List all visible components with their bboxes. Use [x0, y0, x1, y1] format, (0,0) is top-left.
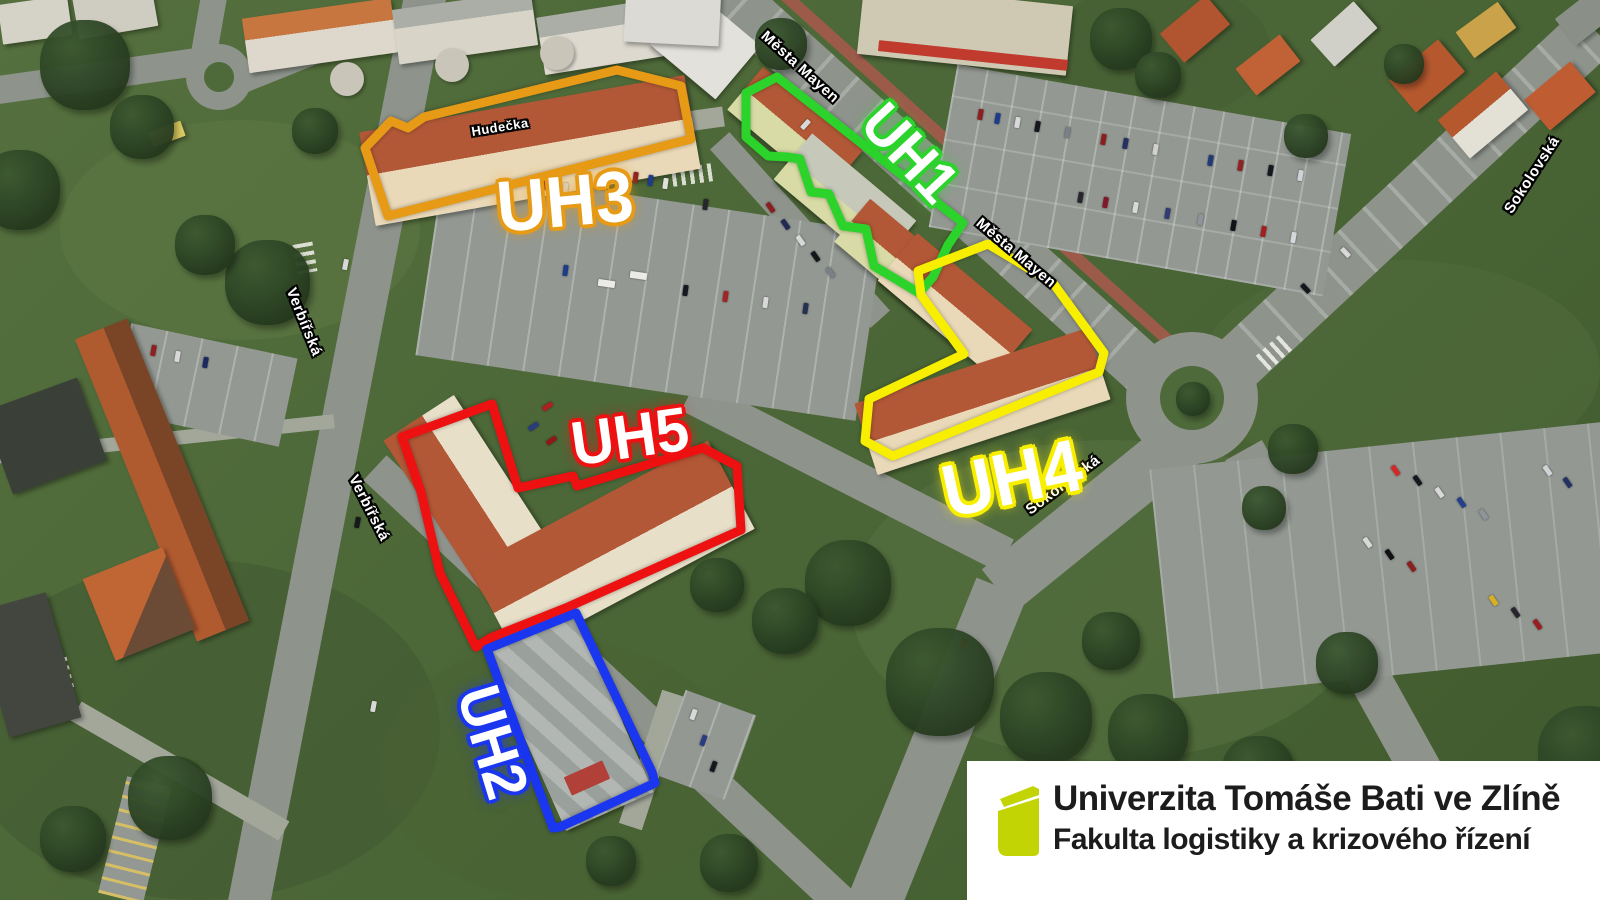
university-name: Univerzita Tomáše Bati ve Zlíně [1053, 777, 1560, 821]
utb-logo-banner: Univerzita Tomáše Bati ve Zlíně Fakulta … [967, 761, 1600, 900]
utb-logo-text: Univerzita Tomáše Bati ve Zlíně Fakulta … [1053, 777, 1560, 859]
utb-book-icon [995, 783, 1039, 857]
faculty-name: Fakulta logistiky a krizového řízení [1053, 821, 1560, 859]
uh3-label: UH3 [493, 155, 636, 249]
campus-aerial-map: Města Mayen Města Mayen Verbířská Verbíř… [0, 0, 1600, 900]
